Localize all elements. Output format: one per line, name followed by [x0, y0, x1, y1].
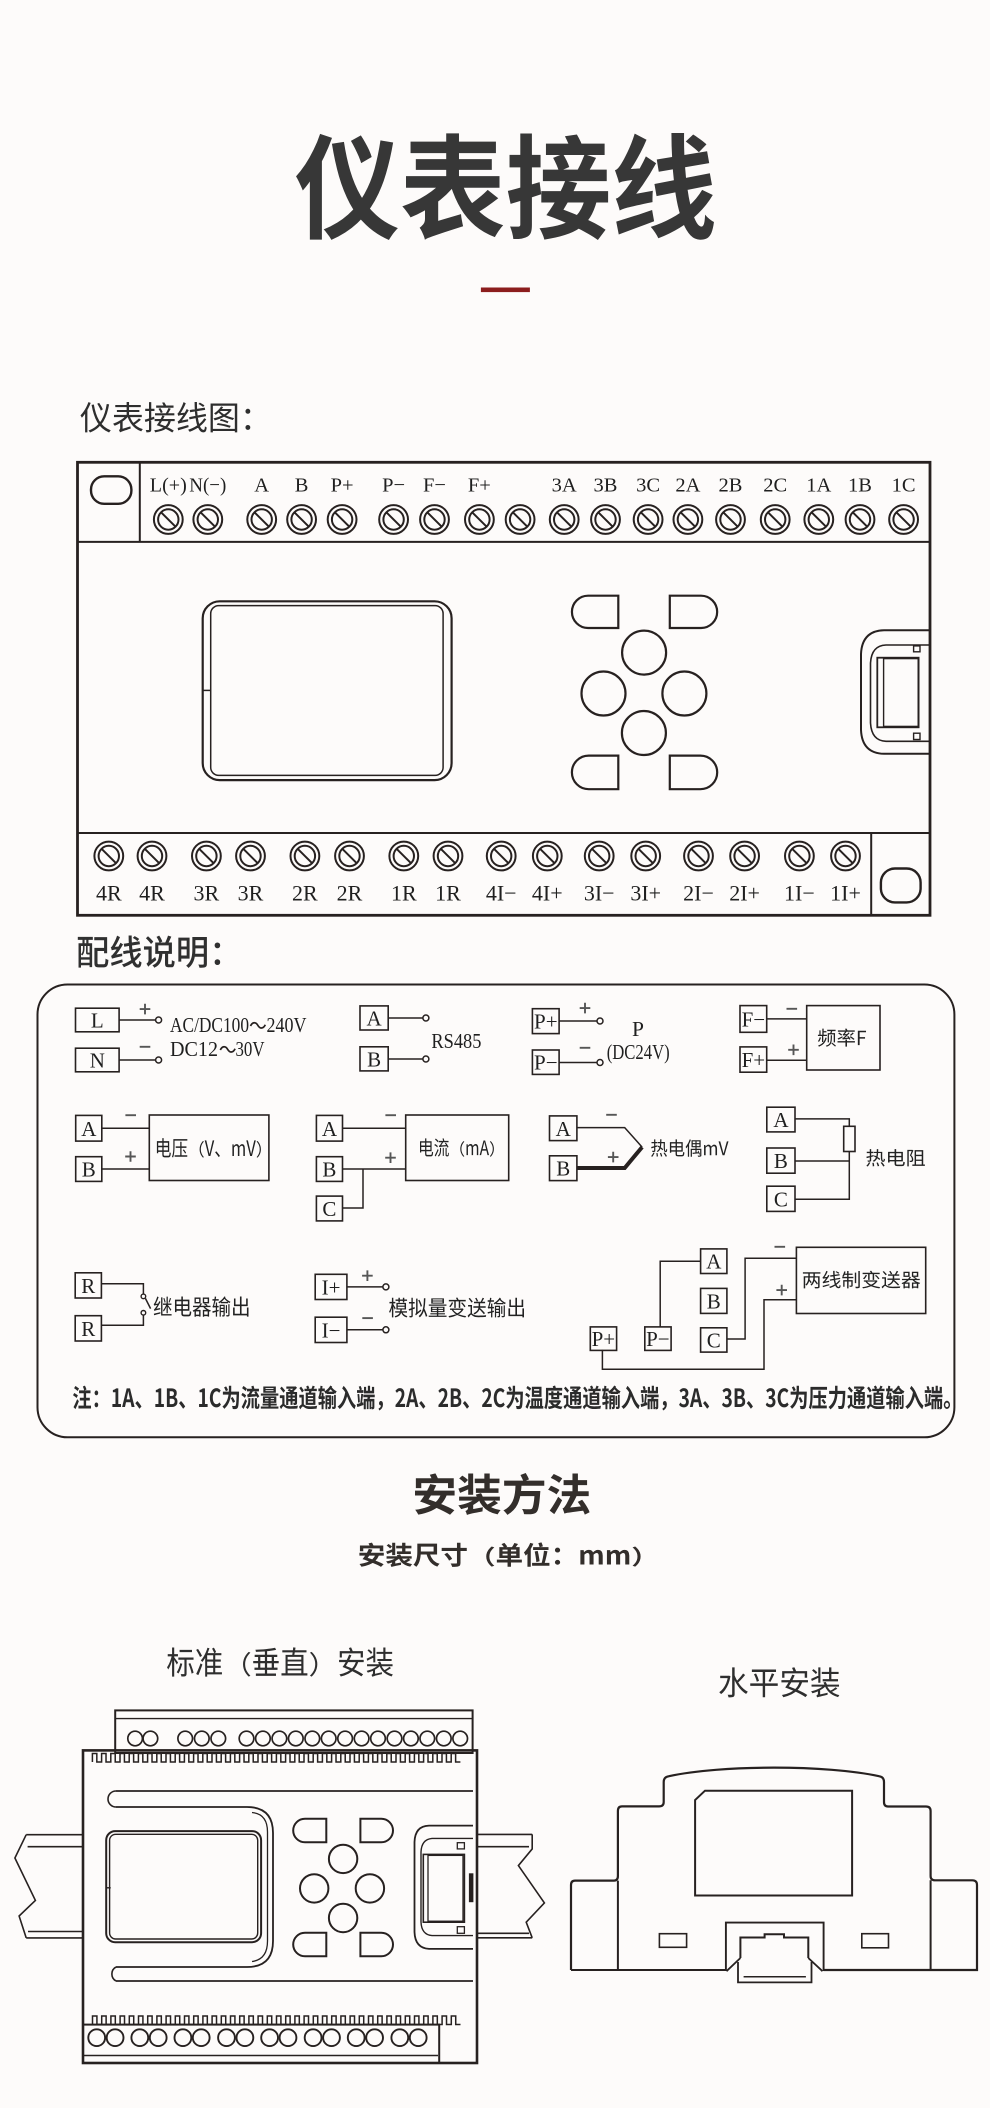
svg-text:R: R — [81, 1274, 95, 1298]
svg-text:1C: 1C — [892, 475, 916, 497]
svg-text:3B: 3B — [594, 475, 618, 497]
svg-text:B: B — [82, 1158, 96, 1182]
svg-text:AC/DC100: AC/DC100 — [170, 1013, 249, 1037]
svg-text:30V: 30V — [236, 1037, 265, 1061]
svg-text:RS485: RS485 — [431, 1029, 481, 1053]
svg-text:240V: 240V — [267, 1013, 307, 1037]
svg-text:I+: I+ — [322, 1275, 341, 1299]
svg-text:P−: P− — [646, 1327, 670, 1351]
svg-text:1R: 1R — [435, 881, 461, 906]
svg-text:B: B — [367, 1047, 381, 1071]
svg-text:C: C — [707, 1329, 721, 1353]
svg-text:A: A — [81, 1117, 97, 1141]
svg-text:DC12: DC12 — [170, 1037, 218, 1061]
svg-text:B: B — [707, 1289, 721, 1313]
svg-text:P+: P+ — [331, 475, 354, 497]
svg-text:A: A — [706, 1250, 722, 1274]
svg-text:B: B — [322, 1158, 336, 1182]
svg-text:A: A — [556, 1117, 572, 1141]
svg-text:A: A — [367, 1006, 383, 1030]
svg-text:3I−: 3I− — [584, 881, 615, 906]
svg-text:3A: 3A — [552, 475, 577, 497]
svg-text:4R: 4R — [96, 881, 122, 906]
svg-text:F+: F+ — [742, 1048, 766, 1072]
svg-text:1I+: 1I+ — [830, 881, 861, 906]
svg-text:F+: F+ — [468, 475, 491, 497]
svg-text:2C: 2C — [763, 475, 787, 497]
svg-text:P: P — [632, 1017, 644, 1041]
svg-text:L: L — [91, 1009, 104, 1033]
svg-text:B: B — [774, 1149, 788, 1173]
svg-text:1A: 1A — [806, 475, 831, 497]
svg-text:(DC24V): (DC24V) — [607, 1040, 670, 1064]
svg-text:F−: F− — [423, 475, 446, 497]
svg-text:2I−: 2I− — [683, 881, 714, 906]
svg-text:L(+): L(+) — [150, 475, 187, 497]
svg-text:1I−: 1I− — [784, 881, 815, 906]
svg-text:C: C — [774, 1187, 788, 1211]
svg-text:A: A — [773, 1108, 789, 1132]
svg-text:4I+: 4I+ — [532, 881, 563, 906]
svg-text:3I+: 3I+ — [630, 881, 661, 906]
svg-text:B: B — [556, 1157, 570, 1181]
svg-text:4R: 4R — [139, 881, 165, 906]
svg-text:P−: P− — [382, 475, 405, 497]
svg-text:I−: I− — [322, 1318, 341, 1342]
svg-text:N: N — [90, 1049, 105, 1073]
svg-text:N(−): N(−) — [189, 475, 226, 497]
svg-text:3C: 3C — [636, 475, 660, 497]
svg-text:2R: 2R — [337, 881, 363, 906]
svg-text:B: B — [295, 475, 309, 497]
svg-text:A: A — [322, 1117, 338, 1141]
svg-text:3R: 3R — [194, 881, 220, 906]
svg-text:A: A — [254, 475, 269, 497]
svg-text:2R: 2R — [292, 881, 318, 906]
svg-text:P+: P+ — [534, 1010, 558, 1034]
svg-text:3R: 3R — [238, 881, 264, 906]
svg-text:2I+: 2I+ — [729, 881, 760, 906]
svg-text:P−: P− — [534, 1051, 558, 1075]
svg-text:2B: 2B — [719, 475, 743, 497]
svg-text:F−: F− — [742, 1008, 766, 1032]
svg-text:1R: 1R — [391, 881, 417, 906]
svg-text:R: R — [81, 1317, 95, 1341]
svg-text:1B: 1B — [848, 475, 872, 497]
svg-text:4I−: 4I− — [486, 881, 517, 906]
svg-text:2A: 2A — [675, 475, 700, 497]
svg-text:C: C — [322, 1197, 336, 1221]
svg-text:P+: P+ — [592, 1327, 616, 1351]
